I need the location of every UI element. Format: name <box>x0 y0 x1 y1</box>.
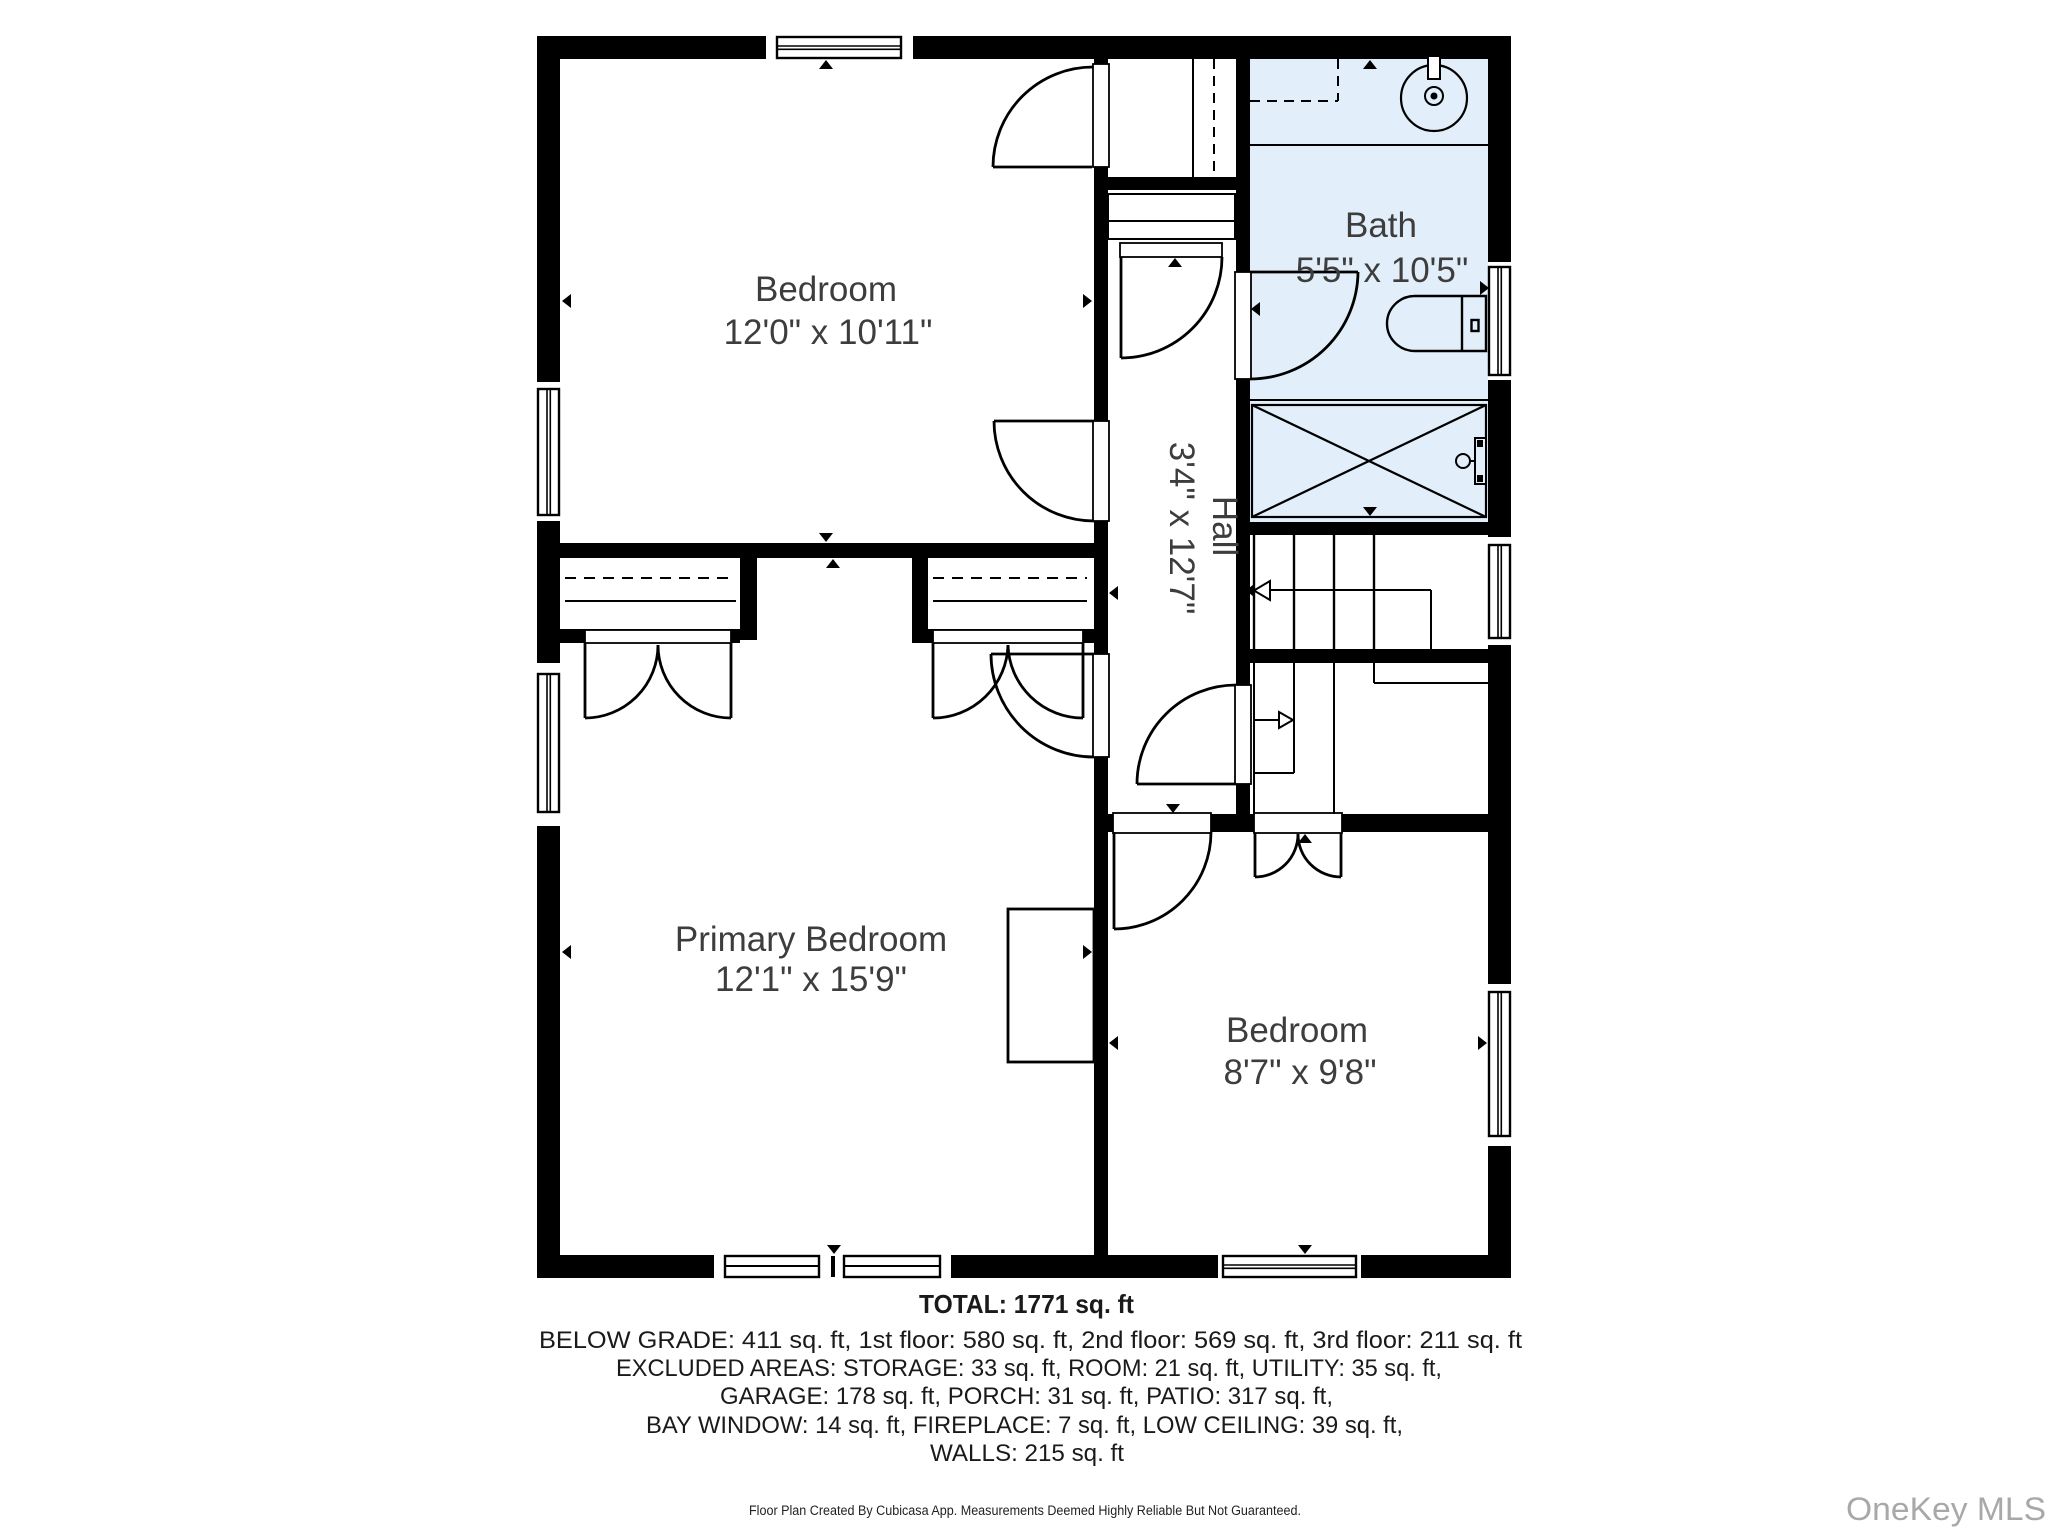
svg-text:GARAGE: 178 sq. ft, PORCH: 31: GARAGE: 178 sq. ft, PORCH: 31 sq. ft, PA… <box>720 1383 1333 1410</box>
svg-text:12'0" x 10'11": 12'0" x 10'11" <box>724 313 933 352</box>
svg-text:Bedroom: Bedroom <box>755 270 897 309</box>
svg-text:EXCLUDED AREAS: STORAGE: 33 sq: EXCLUDED AREAS: STORAGE: 33 sq. ft, ROOM… <box>616 1355 1442 1382</box>
svg-text:BAY WINDOW: 14 sq. ft, FIREPLA: BAY WINDOW: 14 sq. ft, FIREPLACE: 7 sq. … <box>646 1412 1403 1439</box>
svg-text:Primary Bedroom: Primary Bedroom <box>675 920 947 959</box>
svg-text:Floor Plan Created By Cubicasa: Floor Plan Created By Cubicasa App. Meas… <box>749 1503 1301 1518</box>
svg-text:Bath: Bath <box>1345 206 1417 245</box>
svg-text:8'7" x 9'8": 8'7" x 9'8" <box>1223 1053 1376 1092</box>
svg-text:5'5" x 10'5": 5'5" x 10'5" <box>1296 251 1469 290</box>
svg-text:12'1" x 15'9": 12'1" x 15'9" <box>715 960 907 999</box>
svg-text:TOTAL: 1771 sq. ft: TOTAL: 1771 sq. ft <box>919 1289 1134 1319</box>
svg-text:WALLS: 215 sq. ft: WALLS: 215 sq. ft <box>930 1440 1124 1467</box>
svg-text:OneKey MLS: OneKey MLS <box>1846 1491 2046 1527</box>
svg-text:Hall: Hall <box>1205 496 1244 556</box>
svg-text:Bedroom: Bedroom <box>1226 1011 1368 1050</box>
svg-text:3'4" x 12'7": 3'4" x 12'7" <box>1162 442 1201 615</box>
svg-text:BELOW GRADE: 411 sq. ft, 1st f: BELOW GRADE: 411 sq. ft, 1st floor: 580 … <box>539 1327 1522 1354</box>
